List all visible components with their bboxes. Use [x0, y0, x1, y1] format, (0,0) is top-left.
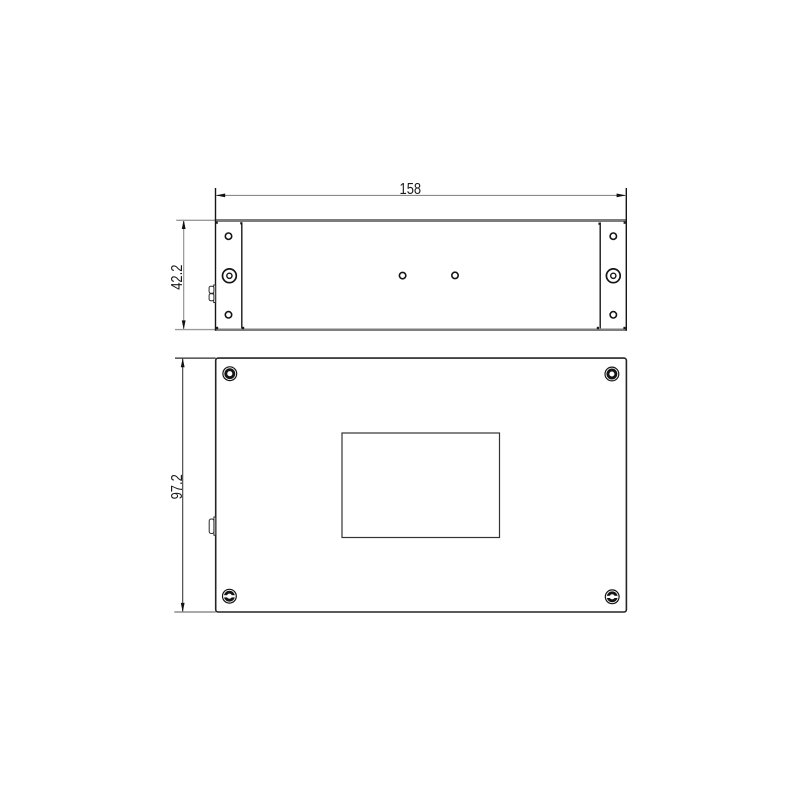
svg-text:42.2: 42.2 — [169, 265, 186, 290]
svg-text:158: 158 — [399, 181, 421, 198]
svg-text:97.2: 97.2 — [169, 474, 186, 499]
